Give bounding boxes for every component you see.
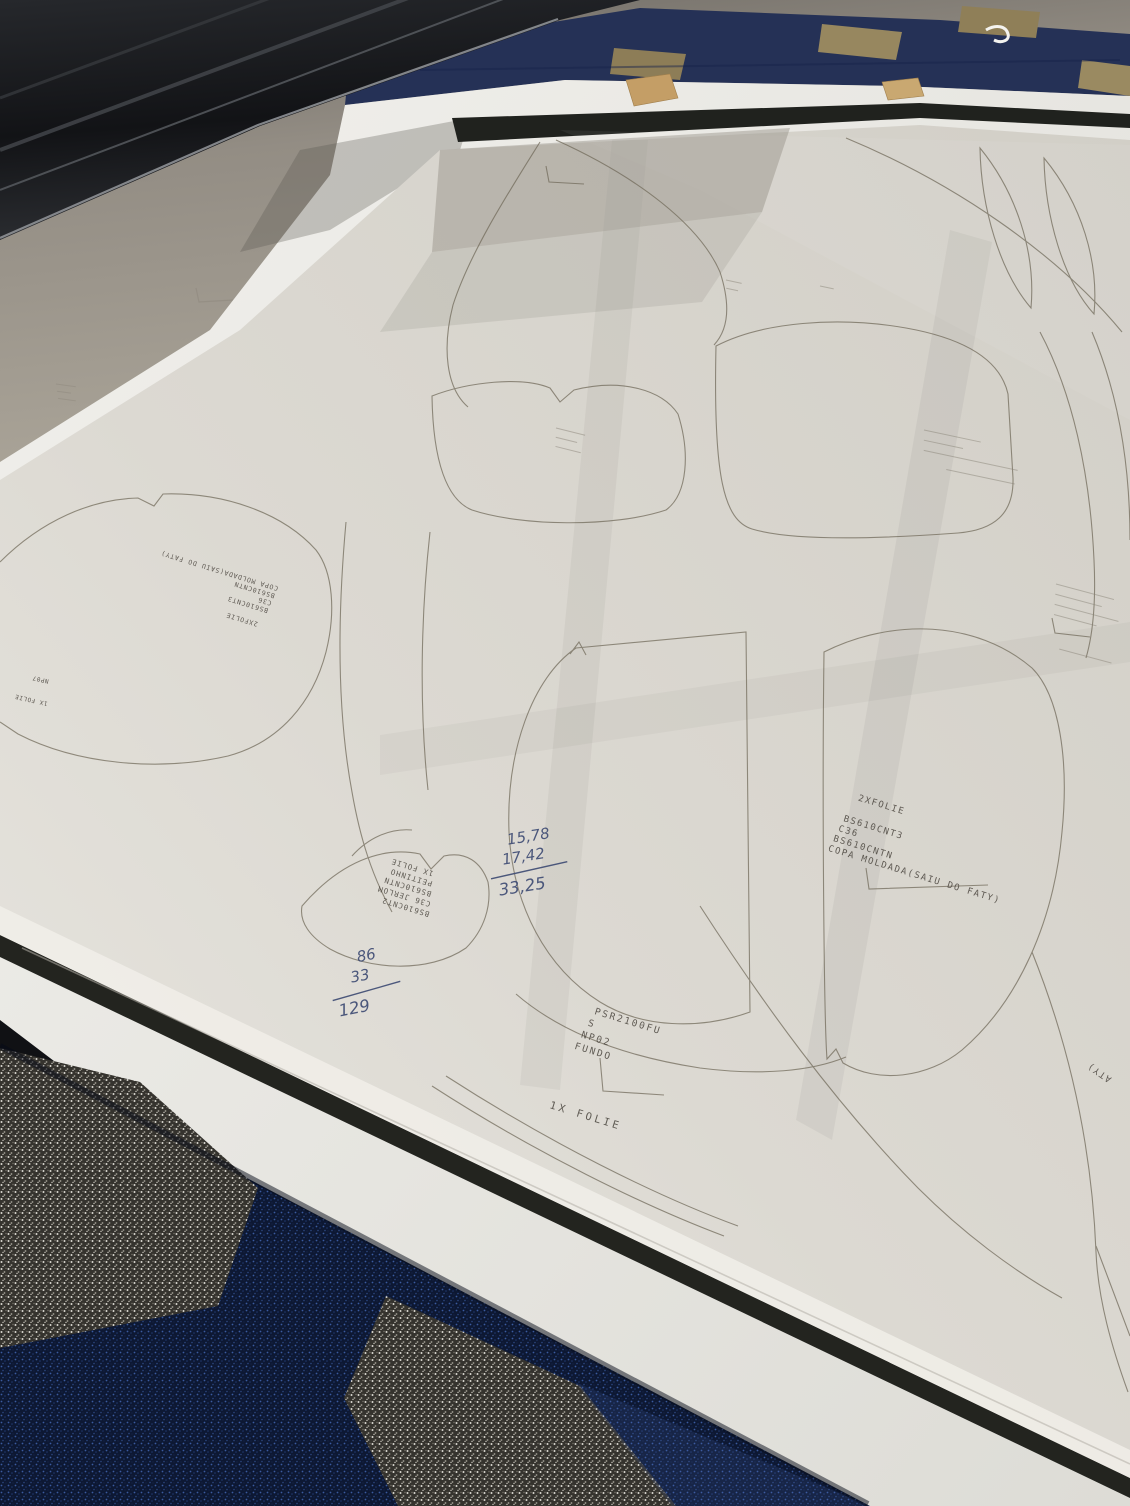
handwritten-number: 33 (349, 965, 371, 986)
photo-pattern-cutting-table: 2XFOLIE BS610CNT3 C36 BS610CNTN COPA MOL… (0, 0, 1130, 1506)
handwritten-number: 86 (355, 945, 377, 966)
cardboard-scrap (882, 78, 924, 100)
